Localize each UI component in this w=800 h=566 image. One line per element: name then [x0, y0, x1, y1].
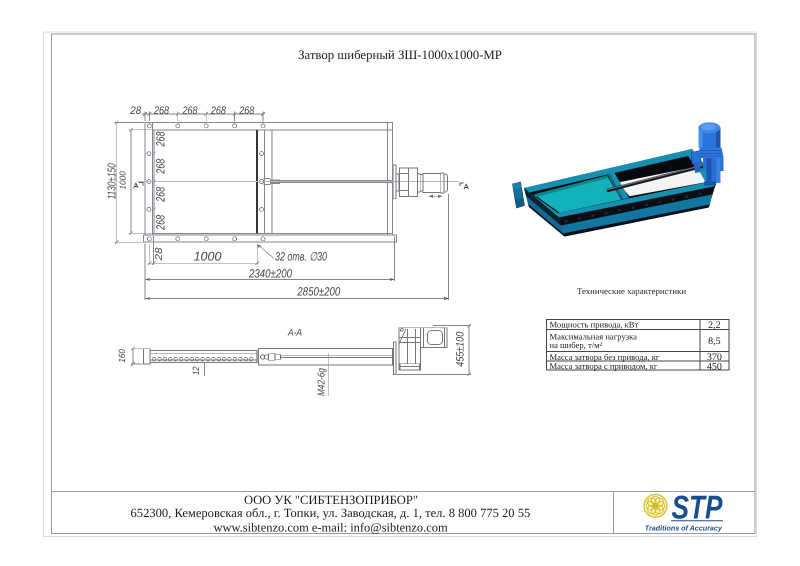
- svg-text:652300, Кемеровская обл., г. Т: 652300, Кемеровская обл., г. Топки, ул. …: [131, 506, 531, 520]
- svg-text:М42-6g: М42-6g: [317, 368, 328, 396]
- svg-text:450: 450: [707, 361, 722, 372]
- svg-text:28: 28: [129, 105, 142, 117]
- svg-text:2,2: 2,2: [708, 320, 721, 331]
- svg-text:28: 28: [154, 247, 165, 262]
- svg-text:STP: STP: [672, 488, 724, 525]
- svg-text:Затвор шиберный ЗШ-1000х1000-М: Затвор шиберный ЗШ-1000х1000-МР: [298, 48, 502, 62]
- svg-text:268: 268: [210, 105, 227, 117]
- svg-text:268: 268: [153, 105, 170, 117]
- svg-text:268: 268: [154, 187, 168, 203]
- svg-text:12: 12: [191, 366, 201, 375]
- svg-text:1130±150: 1130±150: [106, 163, 118, 199]
- svg-text:268: 268: [154, 215, 168, 231]
- svg-text:2340±200: 2340±200: [248, 267, 292, 281]
- svg-text:32 отв. ∅30: 32 отв. ∅30: [275, 249, 327, 263]
- svg-text:ООО УК "СИБТЕНЗОПРИБОР": ООО УК "СИБТЕНЗОПРИБОР": [244, 493, 418, 507]
- svg-text:160: 160: [117, 348, 127, 362]
- svg-text:Масса затвора с приводом, кг: Масса затвора с приводом, кг: [550, 361, 658, 371]
- svg-text:1000: 1000: [194, 249, 222, 263]
- svg-text:А-А: А-А: [287, 328, 302, 339]
- svg-text:268: 268: [182, 105, 199, 117]
- svg-text:Мощность привода, кВт: Мощность привода, кВт: [550, 319, 639, 329]
- svg-text:455±100: 455±100: [454, 332, 466, 367]
- svg-text:1000: 1000: [118, 171, 128, 190]
- svg-text:Traditions of Accuracy: Traditions of Accuracy: [645, 524, 723, 533]
- svg-text:268: 268: [238, 105, 255, 117]
- svg-text:268: 268: [154, 159, 168, 175]
- svg-text:на шибер, т/м²: на шибер, т/м²: [550, 340, 603, 350]
- svg-text:www.sibtenzo.com e-mail: info@: www.sibtenzo.com e-mail: info@sibtenzo.c…: [214, 520, 448, 534]
- svg-text:2850±200: 2850±200: [296, 285, 340, 299]
- svg-text:268: 268: [154, 131, 168, 147]
- svg-text:8,5: 8,5: [708, 336, 721, 347]
- svg-text:Технические характеристики: Технические характеристики: [577, 286, 686, 296]
